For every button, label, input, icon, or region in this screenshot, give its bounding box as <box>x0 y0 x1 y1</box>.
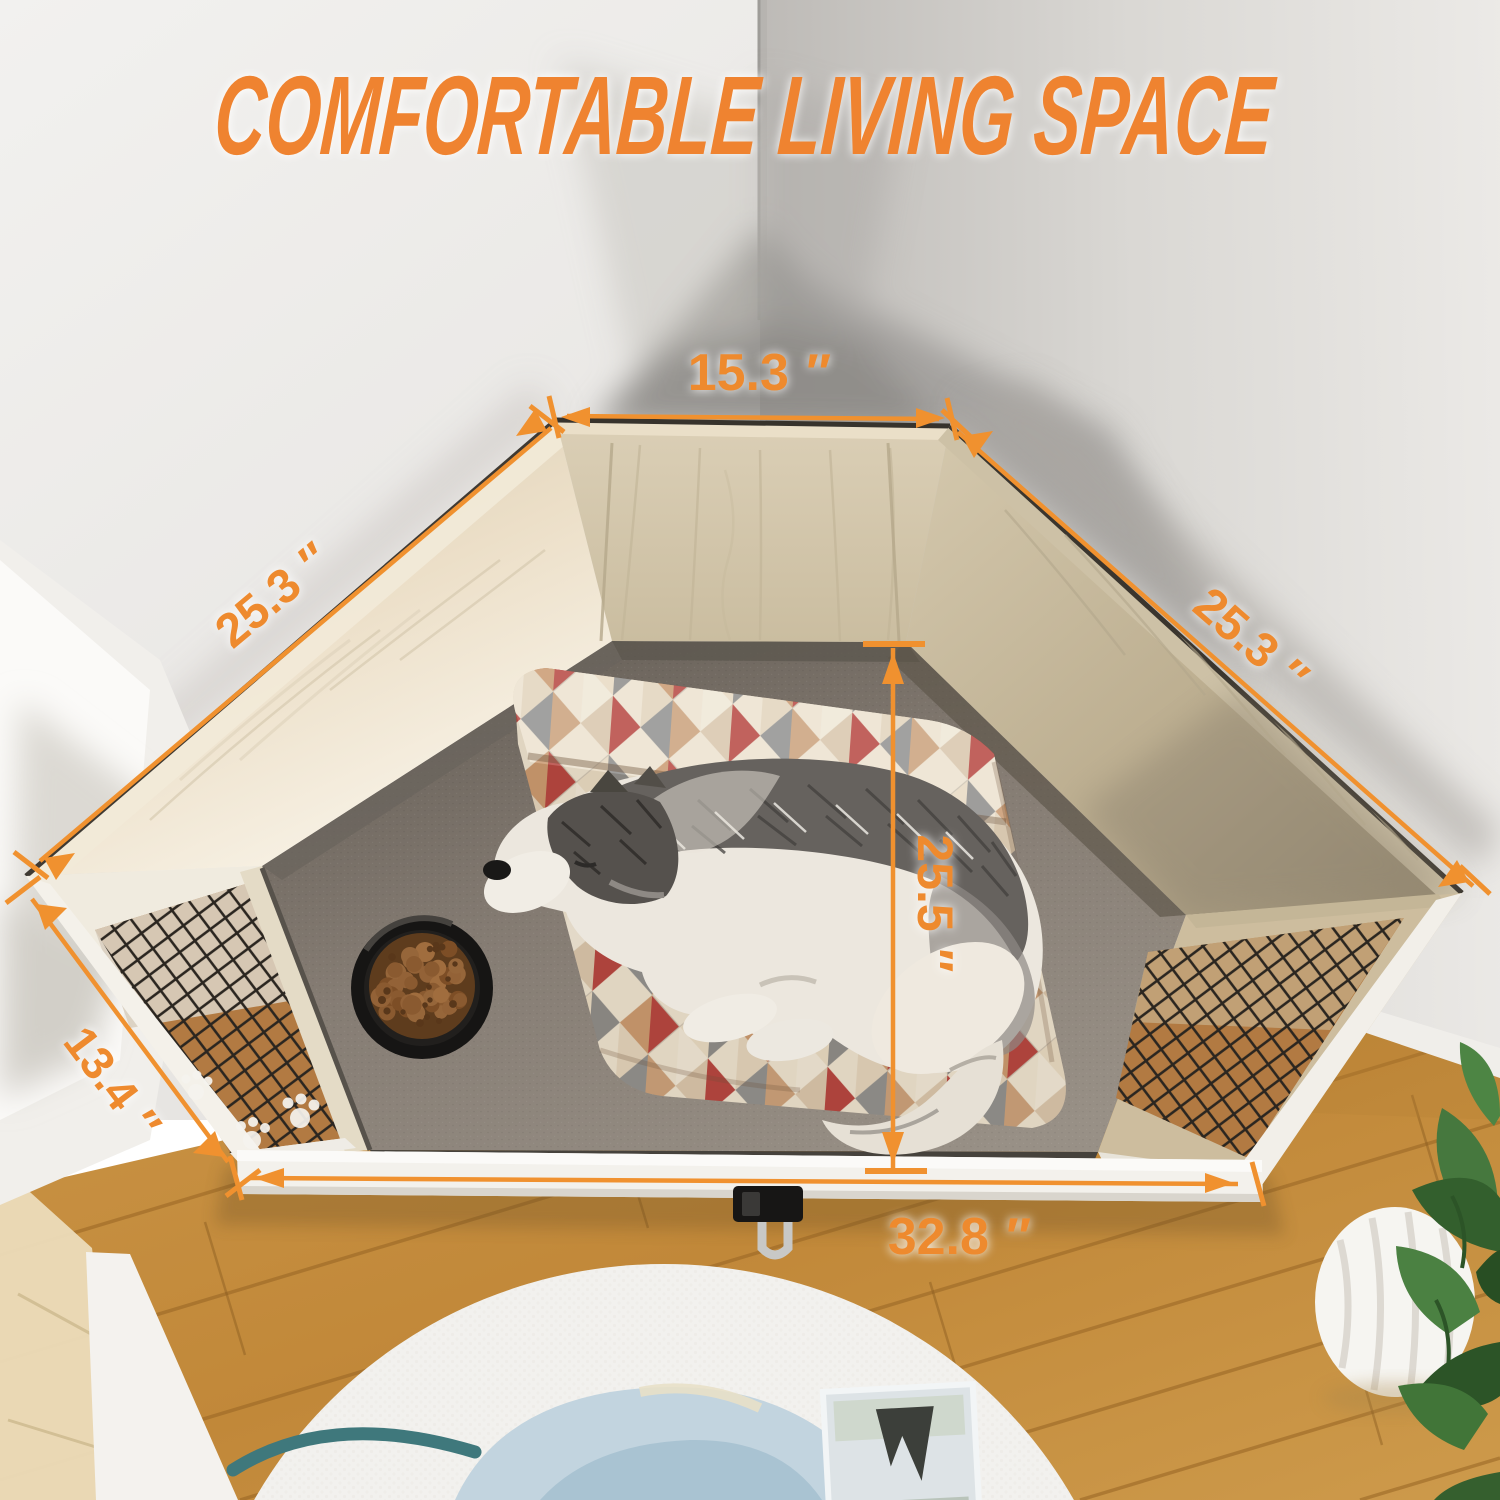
svg-text:15.3 ″: 15.3 ″ <box>688 344 831 402</box>
svg-text:COMFORTABLE LIVING SPACE: COMFORTABLE LIVING SPACE <box>211 52 1280 178</box>
svg-text:32.8 ″: 32.8 ″ <box>888 1208 1031 1266</box>
svg-text:25.5 ″: 25.5 ″ <box>907 834 963 971</box>
